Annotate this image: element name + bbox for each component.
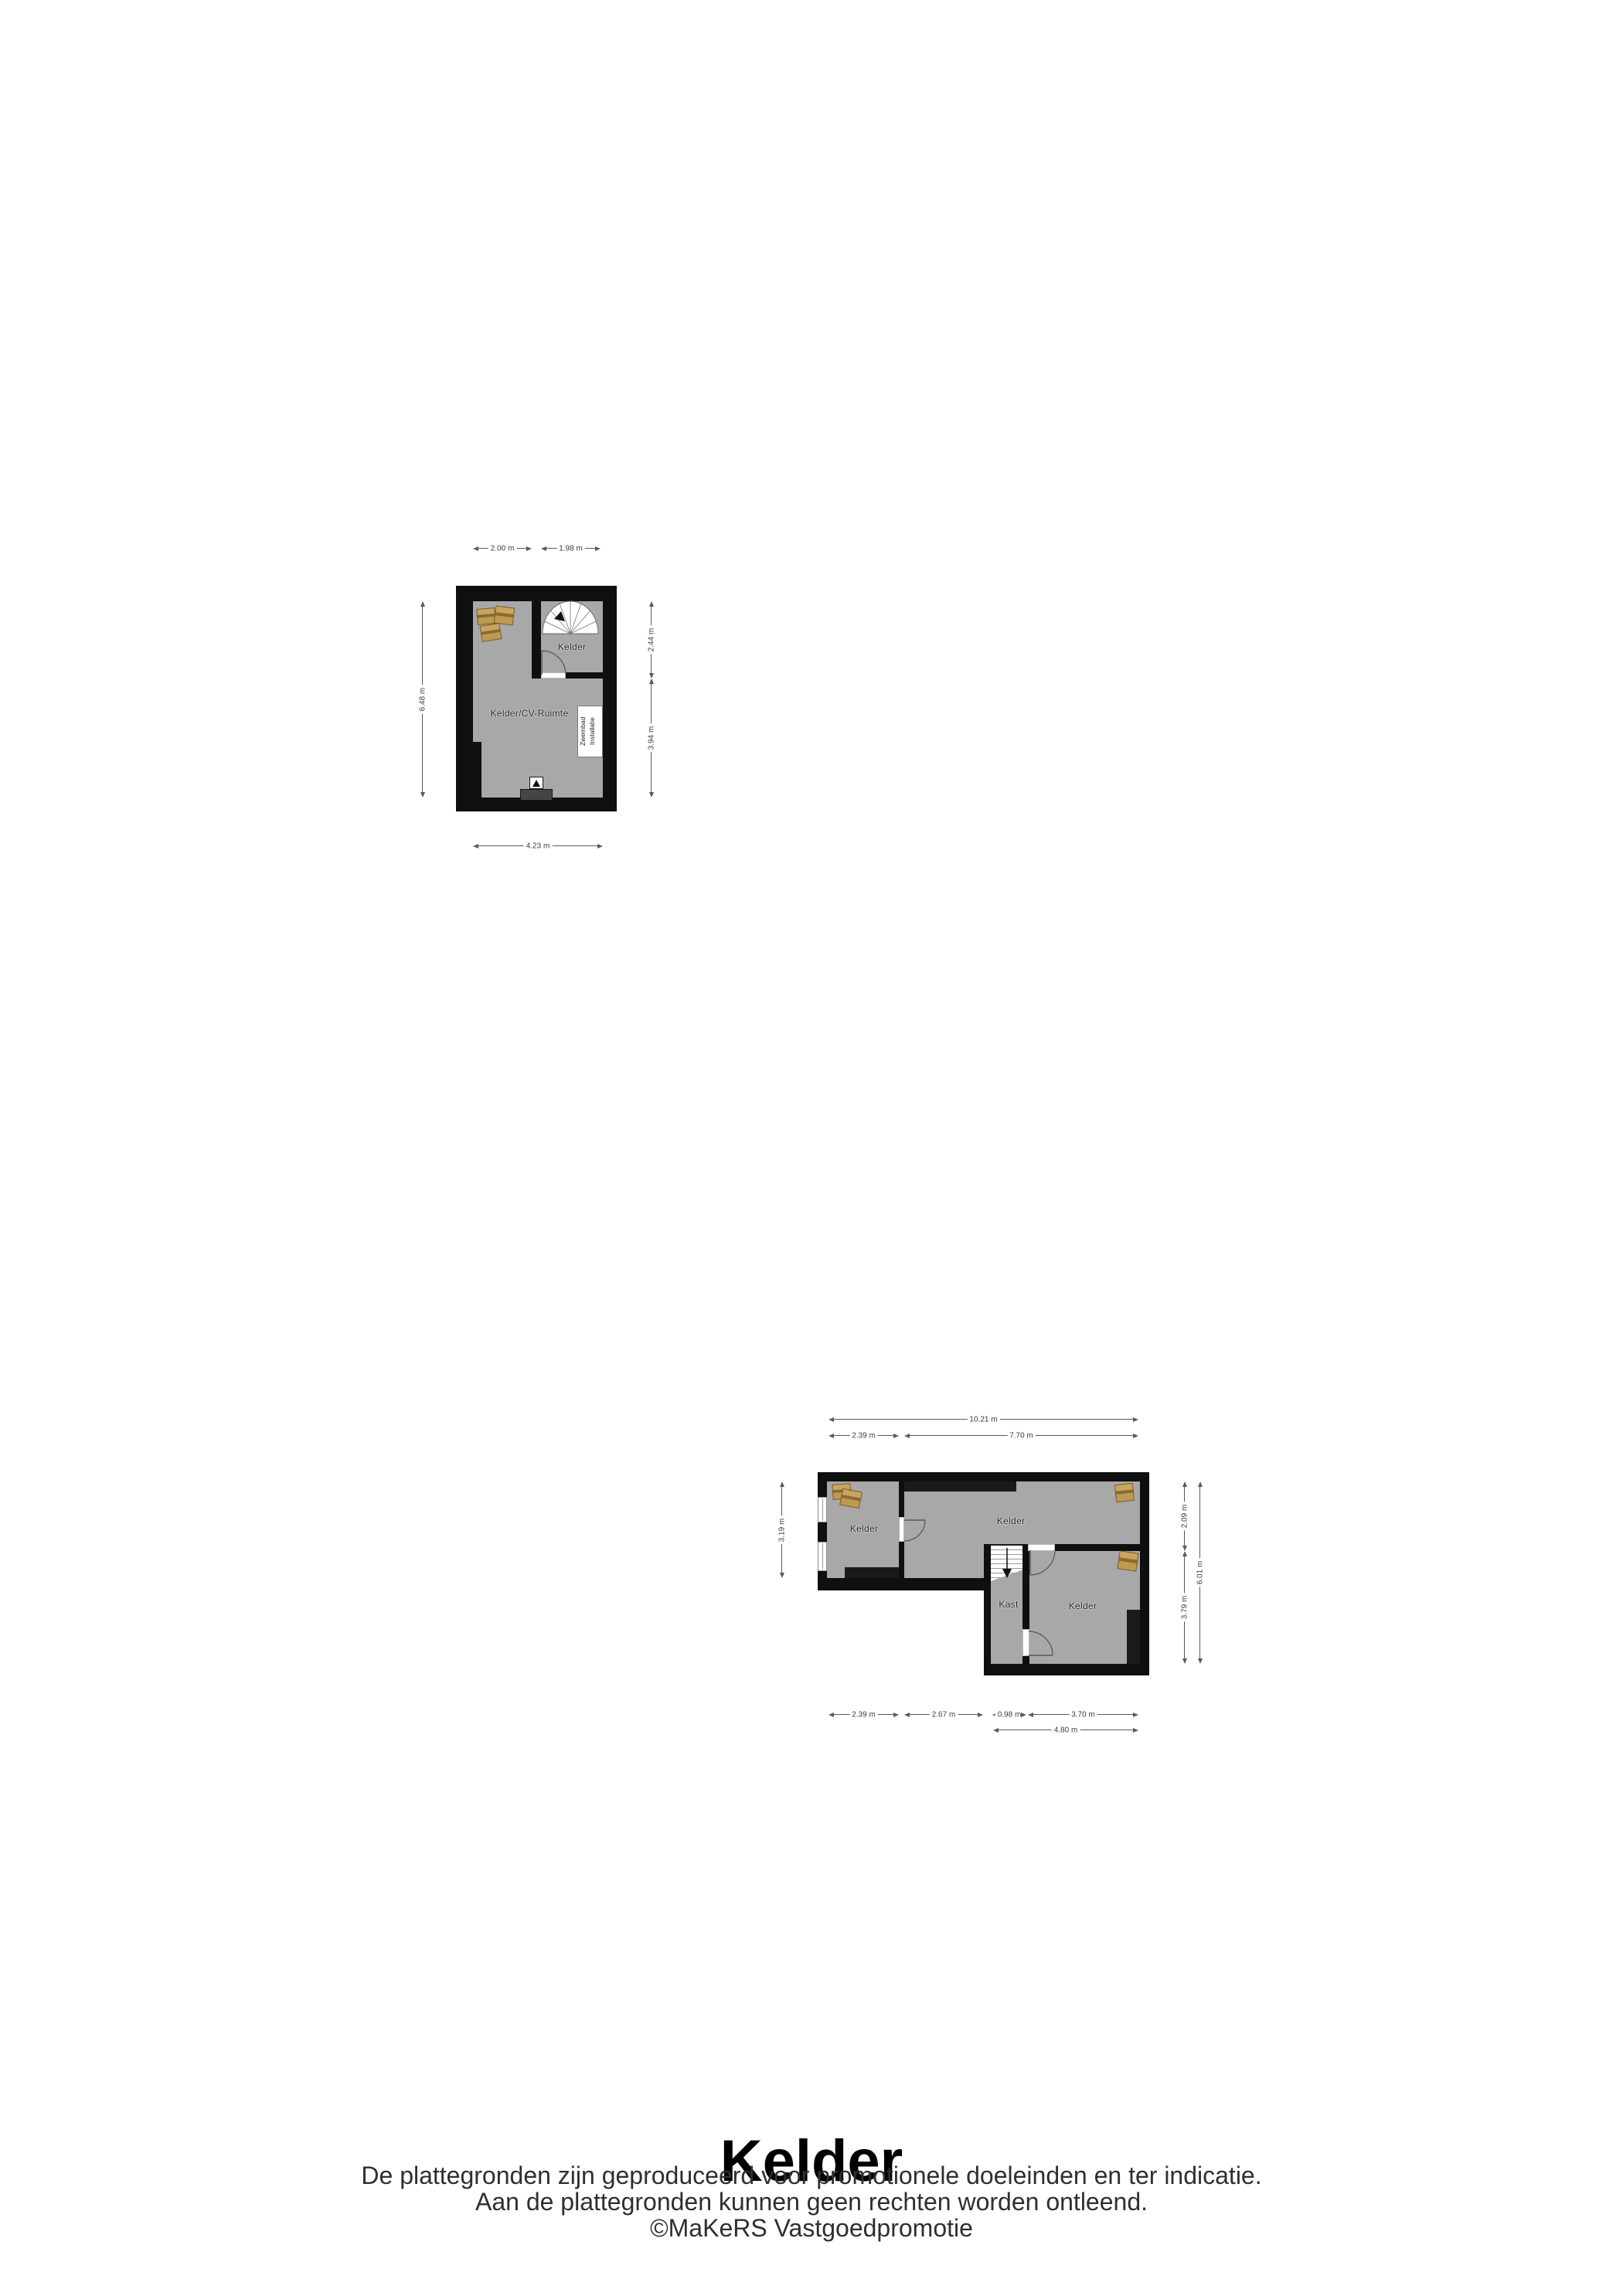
- lower-floorplan: Kelder Kelder Kast Kelder 10.21 m 2.39 m…: [773, 1407, 1221, 1739]
- dim-bottom-total: 4.80 m: [993, 1726, 1138, 1735]
- dim-left: 3.19 m: [777, 1481, 787, 1578]
- furniture-middle-top: [904, 1481, 1016, 1492]
- pool-installation-box: Zwembad Installatie: [577, 706, 603, 757]
- door-opening: [541, 672, 566, 679]
- furniture-left-room: [845, 1567, 899, 1578]
- door-opening-kast: [1022, 1629, 1029, 1656]
- furniture-right-room: [1127, 1610, 1140, 1664]
- dim-top-left: 2.00 m: [473, 544, 532, 553]
- room-label-kast: Kast: [999, 1599, 1018, 1610]
- dim-right-bottom: 3.79 m: [1180, 1551, 1189, 1664]
- credit-line: ©MaKeRS Vastgoedpromotie: [0, 2215, 1623, 2241]
- floorplan-page: Zwembad Installatie Kelder Kelder/CV-Rui…: [0, 0, 1623, 2296]
- room-label-cv-ruimte: Kelder/CV-Ruimte: [491, 708, 569, 719]
- room-label-left-kelder: Kelder: [850, 1523, 879, 1534]
- disclaimer-line-2: Aan de plattegronden kunnen geen rechten…: [0, 2189, 1623, 2215]
- dim-top-right: 7.70 m: [904, 1431, 1138, 1441]
- dim-top-left: 2.39 m: [829, 1431, 899, 1441]
- dim-bottom-2: 2.67 m: [904, 1710, 983, 1719]
- storage-box-icon: [1114, 1483, 1135, 1502]
- window-symbol: [818, 1542, 827, 1571]
- dim-right-top: 2.44 m: [647, 601, 656, 679]
- dim-bottom-1: 2.39 m: [829, 1710, 899, 1719]
- door-opening-middle: [1028, 1544, 1055, 1551]
- room-label-bottom-right-kelder: Kelder: [1069, 1600, 1097, 1611]
- room-label-middle-kelder: Kelder: [997, 1515, 1026, 1526]
- entry-arrow-marker: [529, 777, 543, 789]
- wall-pillar: [473, 742, 481, 798]
- upper-floorplan: Zwembad Installatie Kelder Kelder/CV-Rui…: [417, 529, 672, 862]
- dim-top-total: 10.21 m: [829, 1415, 1138, 1424]
- kast-right-wall: [1022, 1551, 1029, 1629]
- window-symbol: [818, 1497, 827, 1522]
- room-label-stair-kelder: Kelder: [558, 641, 587, 652]
- interior-wall-vertical: [532, 601, 541, 672]
- disclaimer-line-1: De plattegronden zijn geproduceerd voor …: [0, 2162, 1623, 2189]
- dim-right-total: 6.01 m: [1196, 1481, 1205, 1664]
- step-platform: [520, 789, 553, 801]
- pool-installation-label: Zwembad Installatie: [578, 706, 602, 757]
- dim-left: 6.48 m: [418, 601, 427, 798]
- door-opening-left-room: [899, 1517, 904, 1542]
- kast-right-wall-lower: [1022, 1656, 1029, 1664]
- storage-box-icon: [480, 623, 502, 642]
- dim-right-bottom: 3.94 m: [647, 679, 656, 798]
- dim-right-top: 2.09 m: [1180, 1481, 1189, 1551]
- dim-bottom-3: 0.98 m: [992, 1710, 1026, 1719]
- up-arrow-icon: [532, 780, 540, 787]
- dim-bottom: 4.23 m: [473, 842, 603, 851]
- storage-box-icon: [1117, 1550, 1138, 1571]
- disclaimer-text: De plattegronden zijn geproduceerd voor …: [0, 2162, 1623, 2241]
- floor-middle-strip: [904, 1544, 984, 1578]
- storage-box-icon: [839, 1488, 863, 1509]
- dim-top-right: 1.98 m: [541, 544, 601, 553]
- dim-bottom-4: 3.70 m: [1028, 1710, 1138, 1719]
